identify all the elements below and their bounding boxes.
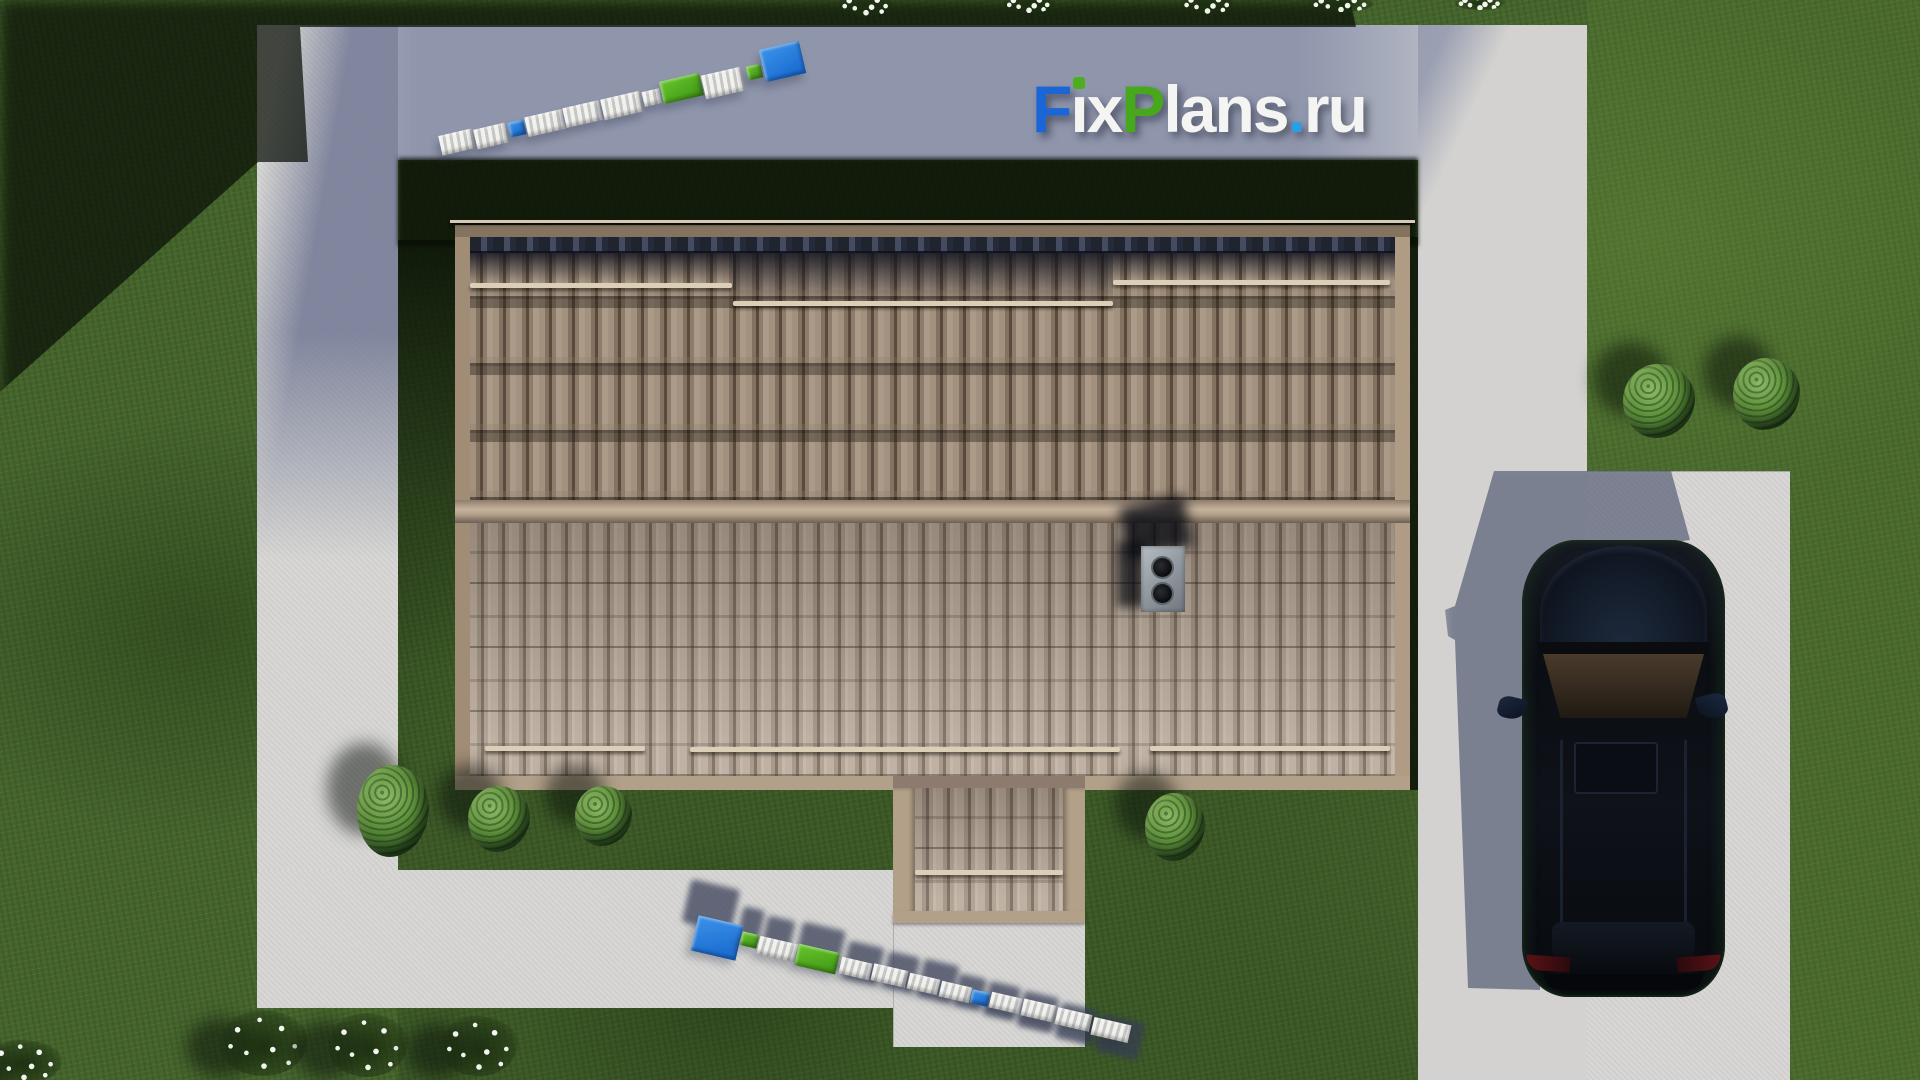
logo-letter: u [1328, 76, 1366, 142]
logo-letter: l [1163, 76, 1179, 142]
car-roof-rib-right [1684, 740, 1687, 950]
car-rear-bumper [1544, 974, 1703, 990]
watermark-block [756, 936, 798, 962]
logo-letter: P [1121, 76, 1163, 142]
car-taillight-left [1526, 954, 1571, 972]
car-roof-rib-left [1560, 740, 1563, 950]
car-windshield [1536, 654, 1711, 718]
logo-letter: x [1087, 76, 1122, 142]
logo-letter: ı [1070, 76, 1086, 142]
watermark-block [691, 915, 744, 960]
logo-letter: . [1288, 76, 1304, 142]
logo-i-dot [1073, 77, 1085, 89]
car-rear-window [1552, 922, 1695, 966]
fixplans-logo: FıxPlans.ru [1032, 76, 1366, 142]
car [1522, 540, 1725, 997]
logo-letter: a [1180, 76, 1215, 142]
car-taillight-right [1677, 954, 1722, 972]
logo-letter: r [1304, 76, 1328, 142]
logo-letter: n [1214, 76, 1252, 142]
car-sunroof [1574, 742, 1658, 794]
logo-letter: F [1032, 76, 1070, 142]
aerial-house-render: FıxPlans.ru [0, 0, 1920, 1080]
watermark-block [740, 931, 760, 948]
logo-letter: s [1253, 76, 1288, 142]
